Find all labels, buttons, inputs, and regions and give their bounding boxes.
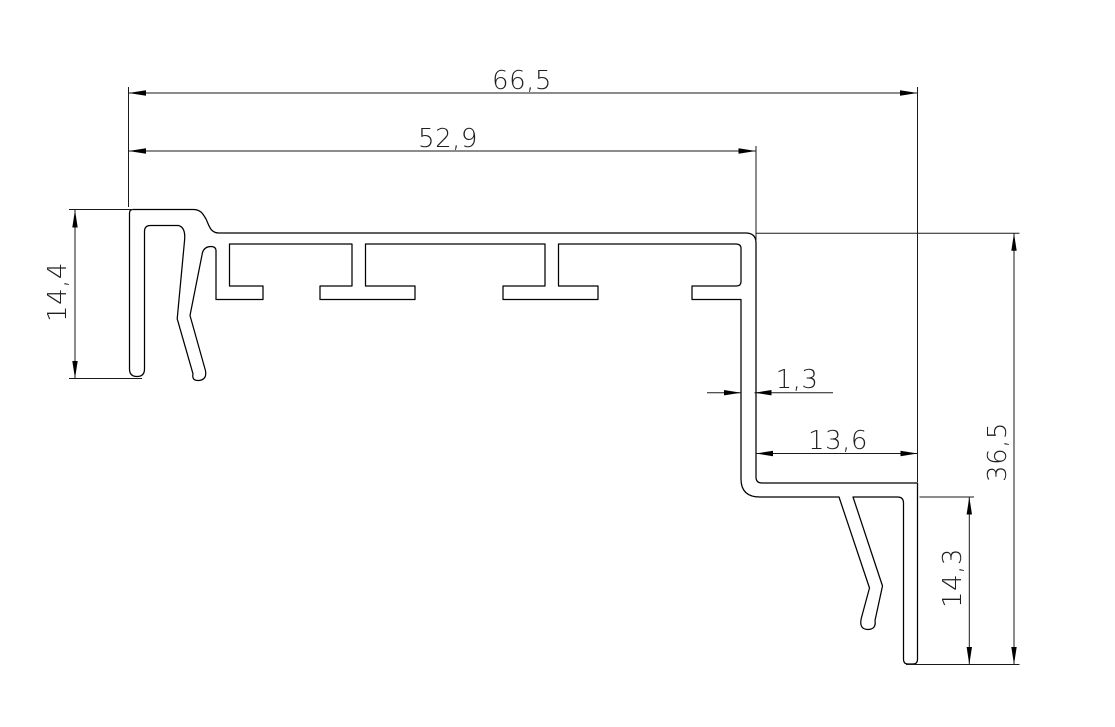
technical-drawing: 66,5 52,9 14,4 1,3: [0, 0, 1115, 727]
dim-overall-width: 66,5: [129, 66, 918, 482]
dimension-value: 13,6: [808, 426, 868, 456]
dimension-value: 36,5: [983, 422, 1013, 482]
drawing-canvas: 66,5 52,9 14,4 1,3: [0, 0, 1115, 727]
dim-body-width: 52,9: [129, 124, 757, 240]
dim-leg-height: 14,3: [920, 497, 975, 665]
arrow-right-icon: [739, 148, 757, 153]
profile-outline: [130, 210, 918, 665]
dimension-value: 14,4: [43, 262, 73, 322]
dim-overall-height: 36,5: [756, 233, 1020, 664]
dimension-value: 66,5: [492, 66, 552, 96]
dim-wall-thickness: 1,3: [707, 365, 833, 395]
arrow-down-icon: [1011, 647, 1016, 665]
arrow-left-icon: [129, 90, 147, 95]
arrow-down-icon: [72, 361, 77, 379]
dim-left-end-height: 14,4: [43, 210, 142, 379]
arrow-right-icon: [901, 451, 918, 456]
dimension-value: 52,9: [418, 124, 478, 154]
arrow-up-icon: [1011, 233, 1016, 251]
dim-offset-width: 13,6: [756, 426, 918, 456]
arrow-down-icon: [967, 647, 972, 665]
arrow-left-icon: [756, 451, 773, 456]
arrow-up-icon: [967, 497, 972, 515]
arrow-left-icon: [755, 390, 772, 395]
arrow-right-icon: [900, 90, 918, 95]
arrow-right-icon: [724, 390, 741, 395]
dimension-value: 14,3: [938, 548, 968, 608]
arrow-up-icon: [72, 210, 77, 228]
dimension-value: 1,3: [776, 365, 819, 395]
arrow-left-icon: [129, 148, 147, 153]
